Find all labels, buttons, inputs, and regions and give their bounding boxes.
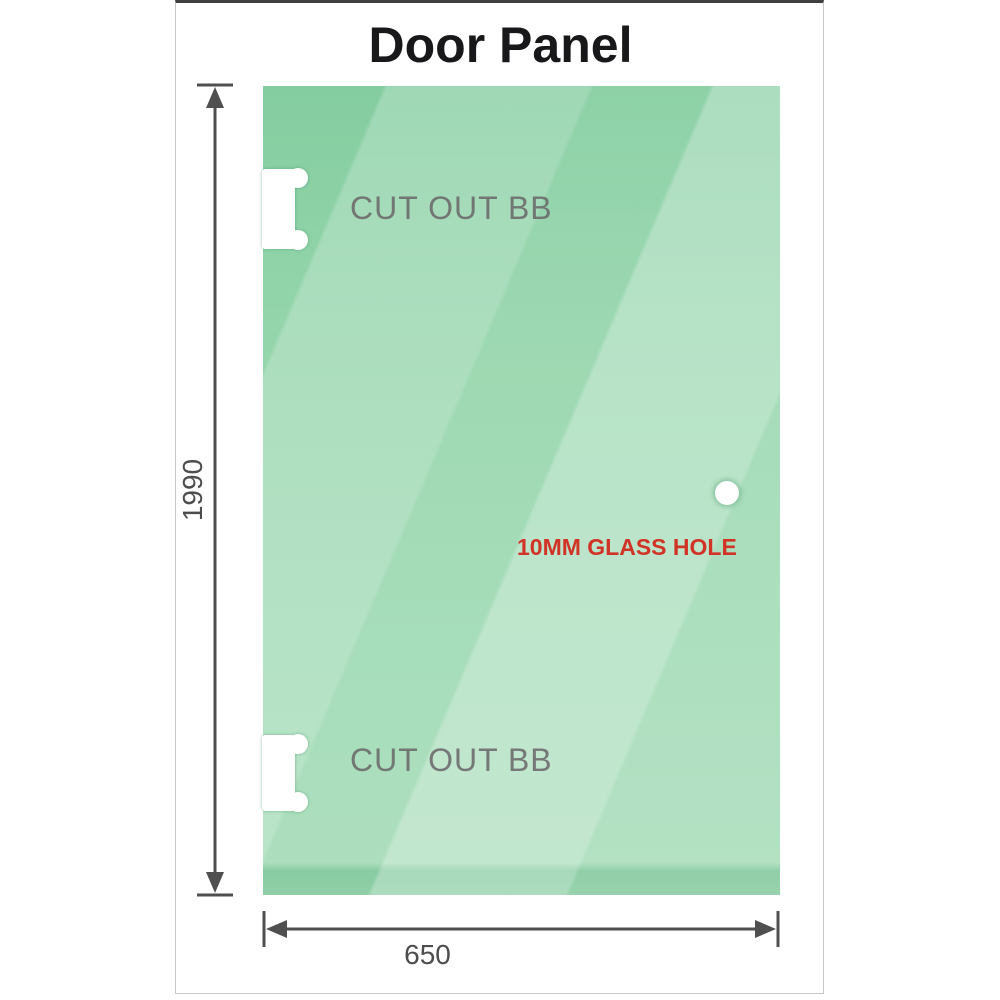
cutout-top-label: CUT OUT BB — [350, 190, 553, 227]
page-title: Door Panel — [175, 16, 826, 74]
hinge-cutout-bottom-icon — [262, 733, 312, 813]
glass-hole-icon — [715, 481, 739, 505]
height-dimension-value: 1990 — [177, 420, 209, 560]
door-panel-diagram: Door Panel CUT OUT BB CUT OUT BB 10MM GL… — [0, 0, 1000, 1000]
glass-hole-label: 10MM GLASS HOLE — [517, 534, 737, 561]
cutout-bottom-label: CUT OUT BB — [350, 742, 553, 779]
width-dimension-value: 650 — [385, 939, 470, 971]
hinge-cutout-top-icon — [262, 167, 312, 251]
glass-panel: CUT OUT BB CUT OUT BB 10MM GLASS HOLE — [263, 86, 780, 895]
